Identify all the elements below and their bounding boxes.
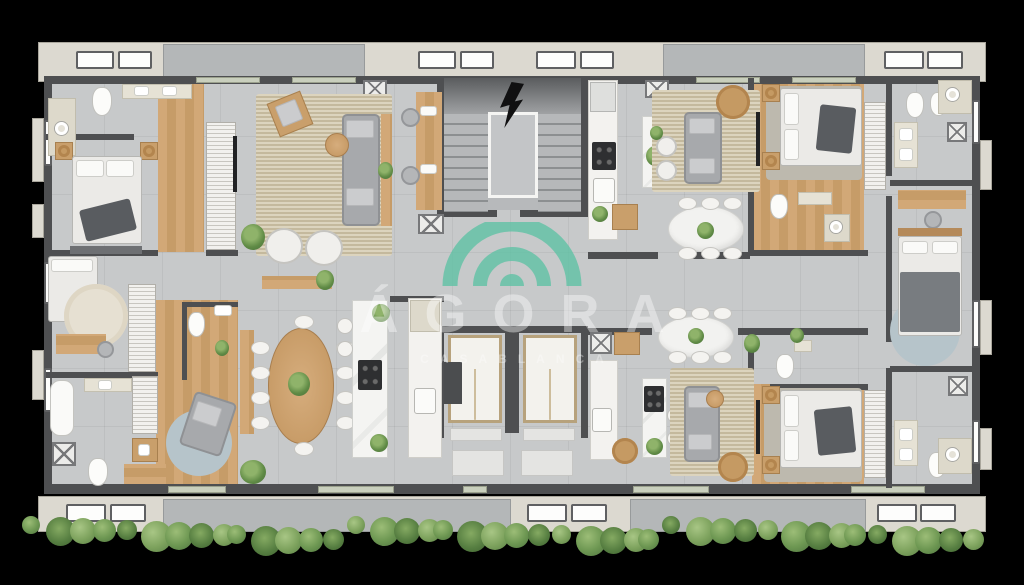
stool-island-2 xyxy=(337,341,353,357)
dining-rb-chair-6 xyxy=(713,351,732,364)
lamp-side-unit xyxy=(138,444,150,456)
hedge-bush xyxy=(662,516,680,534)
glass-door-top-4 xyxy=(792,77,856,83)
hedge-bush xyxy=(963,529,984,550)
hedge-bush xyxy=(189,523,214,548)
ac-ledge-left-3 xyxy=(32,350,44,400)
plant-living-rb xyxy=(744,334,760,353)
cooktop-island-left xyxy=(358,360,382,390)
hedge-bush xyxy=(734,519,757,542)
dining-chair-l3 xyxy=(251,391,270,405)
pillow-tr-1 xyxy=(784,93,799,125)
tv-bedroom-rb xyxy=(756,400,760,454)
window-right-2 xyxy=(972,300,980,348)
glass-door-bottom-3 xyxy=(463,486,487,493)
shower-head-ensuite-tr xyxy=(830,221,842,233)
toilet-bath-2 xyxy=(88,458,108,486)
ac-ledge-right-2 xyxy=(980,300,992,355)
lamp-tr-1 xyxy=(765,87,777,99)
dining-rb-chair-1 xyxy=(668,307,687,320)
wood-entry-mat xyxy=(124,464,166,486)
lamp-master-right xyxy=(143,145,155,157)
hedge-bush xyxy=(710,518,736,544)
wall-wc-left xyxy=(182,302,187,380)
plant-dining-rb xyxy=(688,328,704,344)
hedge-bush xyxy=(528,524,550,546)
sink-kitchen-left xyxy=(414,388,436,414)
hedge-bush xyxy=(433,520,453,540)
basin-bath1-1 xyxy=(899,128,913,141)
hedge-bush xyxy=(22,516,40,534)
terrace-top-left xyxy=(163,44,365,78)
wardrobe-tr xyxy=(864,102,886,190)
pillow-mr-2 xyxy=(932,241,958,254)
dining-chair-l1 xyxy=(251,341,270,355)
chair-bedroom-2 xyxy=(97,341,114,358)
washer-bath1 xyxy=(947,122,967,142)
plant-island-bottom xyxy=(370,434,388,452)
plant-wc xyxy=(215,340,229,356)
hall-cabinet-2 xyxy=(521,450,573,476)
sofa-rt-cushion-2 xyxy=(689,158,715,174)
shaft-hall xyxy=(418,214,444,234)
dining-chair-l4 xyxy=(251,416,270,430)
pillow-bed-2 xyxy=(51,259,93,272)
basin-bath-b-1 xyxy=(899,428,913,441)
pillow-master-1 xyxy=(76,160,104,177)
basket-unit-rt xyxy=(612,204,638,230)
glass-door-top-1 xyxy=(196,77,260,83)
wall-elevator-divider xyxy=(505,333,519,433)
dining-chair-l2 xyxy=(251,366,270,380)
dining-rt-chair-2 xyxy=(701,197,720,210)
window-top-6 xyxy=(580,51,614,69)
stairs-treads-left xyxy=(444,114,488,212)
wardrobe-bath-2 xyxy=(132,376,158,434)
armchair-2 xyxy=(305,230,343,266)
hedge-bush xyxy=(70,518,96,544)
laptop-2 xyxy=(420,164,437,174)
tv-living xyxy=(233,136,237,192)
throw-tr xyxy=(816,104,857,154)
elevator-2 xyxy=(523,335,577,423)
wood-floor-master-hall xyxy=(158,78,204,252)
wardrobe-tv-unit xyxy=(206,122,236,250)
oven-tower-left xyxy=(444,362,462,404)
washer-rb xyxy=(590,332,612,354)
window-top-8 xyxy=(927,51,963,69)
toilet-wc xyxy=(188,312,205,337)
glass-door-top-2 xyxy=(292,77,356,83)
laptop-1 xyxy=(420,106,437,116)
window-top-1 xyxy=(76,51,114,69)
cooktop-rb xyxy=(644,386,664,412)
lamp-master-left xyxy=(58,145,70,157)
floor-plan: ÁGORA CASABLANCA xyxy=(0,0,1024,585)
shower-head-bath-b xyxy=(946,448,959,461)
glass-door-bottom-1 xyxy=(168,486,226,493)
hedge-bush xyxy=(504,523,529,548)
elevator-mat-1 xyxy=(450,428,502,441)
sofa-rt-cushion-1 xyxy=(689,118,715,134)
hedge-row xyxy=(26,516,986,560)
stairs-void xyxy=(488,112,538,198)
sink-rt xyxy=(593,178,615,203)
lamp-tr-2 xyxy=(765,155,777,167)
chair-bedroom-mr xyxy=(924,211,942,229)
plant-console xyxy=(378,162,393,179)
plant-ensuite-rb xyxy=(790,328,804,343)
toilet-ensuite-rb xyxy=(776,354,794,379)
sink-wc xyxy=(214,305,232,316)
basin-master-1 xyxy=(134,86,149,96)
wall-ensuite-tr-south xyxy=(750,250,868,256)
wall-elevator-top xyxy=(437,326,588,333)
hedge-bush xyxy=(868,525,887,544)
hedge-bush xyxy=(552,525,571,544)
window-top-5 xyxy=(536,51,576,69)
window-top-3 xyxy=(418,51,456,69)
window-top-2 xyxy=(118,51,152,69)
sink-rb xyxy=(592,408,612,432)
washer-bath-b xyxy=(948,376,968,396)
wall-bath1-south xyxy=(890,180,972,186)
ac-ledge-left-2 xyxy=(32,204,44,238)
sofa-cushion-2 xyxy=(346,188,374,206)
wall-living-bed-tr-2 xyxy=(748,186,754,256)
vanity-master xyxy=(122,84,192,99)
toilet-master xyxy=(92,87,112,116)
toilet-ensuite-tr xyxy=(770,194,788,219)
duvet-mr xyxy=(900,272,960,332)
wardrobe-rb xyxy=(864,390,886,478)
wall-master-south-2 xyxy=(206,250,238,256)
wall-bedroom-mr-south xyxy=(890,366,972,372)
elevator-mat-2 xyxy=(523,428,575,441)
wall-elevator-right xyxy=(581,326,588,438)
hedge-bush xyxy=(323,529,344,550)
tub-bath-2 xyxy=(50,380,74,436)
pillow-tr-2 xyxy=(784,129,799,160)
stool-island-1 xyxy=(337,318,353,334)
wall-stairs-right xyxy=(581,78,588,212)
headboard-mr xyxy=(898,228,962,236)
throw-rb xyxy=(814,406,857,456)
plant-console-low xyxy=(316,270,334,290)
washer-bath-2 xyxy=(52,442,76,466)
pillow-master-2 xyxy=(106,160,134,177)
hall-cabinet-1 xyxy=(452,450,504,476)
cooktop-rt xyxy=(592,142,616,170)
hedge-bush xyxy=(93,519,116,542)
shower-head-master xyxy=(55,122,68,135)
glass-door-bottom-4 xyxy=(633,486,709,493)
tv-bedroom-tr xyxy=(756,112,760,166)
hedge-bush xyxy=(347,516,365,534)
window-right-3 xyxy=(972,420,980,464)
pillow-rb-1 xyxy=(784,395,799,427)
plant-dining-rt xyxy=(697,222,714,239)
side-table-rb xyxy=(706,390,724,408)
wall-corridor-rt-1 xyxy=(588,252,658,259)
toilet-bath1 xyxy=(906,92,924,118)
hedge-bush xyxy=(394,518,420,544)
dining-chair-bottom xyxy=(294,442,314,456)
dining-rb-chair-2 xyxy=(691,307,710,320)
plant-nook xyxy=(240,460,266,484)
hedge-bush xyxy=(844,524,866,546)
window-right-1 xyxy=(972,100,980,144)
plant-island-top xyxy=(372,304,390,322)
basin-bath-2 xyxy=(98,380,112,390)
dining-rt-chair-6 xyxy=(723,247,742,260)
sofa-rb-cushion-2 xyxy=(688,434,712,450)
plant-living-1 xyxy=(241,224,265,250)
shower-head-bath1 xyxy=(946,88,959,101)
armchair-1 xyxy=(265,228,303,264)
plant-island-rb xyxy=(646,438,663,455)
ac-ledge-right-1 xyxy=(980,140,992,190)
pouf-living-rb xyxy=(718,452,748,482)
basin-bath1-2 xyxy=(899,148,913,161)
dining-rb-chair-3 xyxy=(713,307,732,320)
lamp-rb-1 xyxy=(765,389,777,401)
pillow-rb-2 xyxy=(784,430,799,461)
pouf-kitchen-rb xyxy=(612,438,638,464)
wall-right-col-1 xyxy=(886,76,892,176)
dining-rt-chair-4 xyxy=(678,247,697,260)
dining-rt-chair-1 xyxy=(678,197,697,210)
plant-living-rt xyxy=(650,126,663,140)
plant-dining-left xyxy=(288,372,310,396)
terrace-top-right xyxy=(663,44,865,78)
basin-master-2 xyxy=(162,86,177,96)
lamp-rb-2 xyxy=(765,459,777,471)
desk-bedroom-mr xyxy=(898,190,966,209)
hedge-bush xyxy=(299,528,323,552)
office-chair-2 xyxy=(401,166,420,185)
basin-bath-b-2 xyxy=(899,448,913,461)
fridge-left xyxy=(410,300,440,332)
basket-unit-rb xyxy=(614,332,640,355)
stairs-treads-right xyxy=(538,114,581,212)
hedge-bush xyxy=(600,527,627,554)
ac-ledge-left-1 xyxy=(32,118,44,182)
plant-kitchen-rt xyxy=(592,206,608,222)
dining-chair-top xyxy=(294,315,314,329)
pillow-mr-1 xyxy=(902,241,928,254)
wall-right-col-3 xyxy=(886,368,892,488)
hedge-bush xyxy=(758,520,778,540)
office-chair-1 xyxy=(401,108,420,127)
hedge-bush xyxy=(638,529,659,550)
bench-master xyxy=(70,246,142,254)
sofa-cushion-1 xyxy=(346,120,374,138)
hedge-bush xyxy=(939,528,963,552)
vanity-ensuite-tr xyxy=(798,192,832,205)
glass-door-bottom-2 xyxy=(318,486,394,493)
wardrobe-bedroom-2 xyxy=(128,284,156,372)
window-top-7 xyxy=(884,51,924,69)
side-table-rt-2 xyxy=(656,160,677,181)
hedge-bush xyxy=(227,525,246,544)
dining-rb-chair-5 xyxy=(691,351,710,364)
ac-ledge-right-3 xyxy=(980,428,992,470)
window-top-4 xyxy=(460,51,494,69)
fridge-rt xyxy=(590,82,616,112)
dining-rt-chair-5 xyxy=(701,247,720,260)
coffee-table xyxy=(325,133,349,157)
dining-rt-chair-3 xyxy=(723,197,742,210)
dining-rb-chair-4 xyxy=(668,351,687,364)
hedge-bush xyxy=(117,520,137,540)
